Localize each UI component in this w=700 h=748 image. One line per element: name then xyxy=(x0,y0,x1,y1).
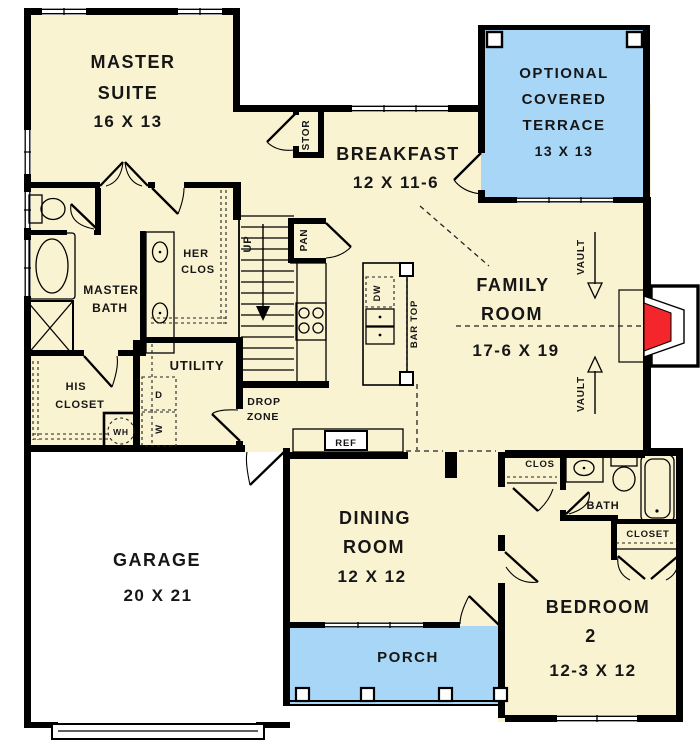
label-garage-dims: 20 X 21 xyxy=(123,586,192,605)
label-her-closet: CLOS xyxy=(181,264,215,276)
label-her-closet: HER xyxy=(183,248,209,260)
label-up: UP xyxy=(242,236,254,253)
label-terrace-dims: 13 X 13 xyxy=(535,143,594,159)
label-family-room: FAMILY xyxy=(476,275,549,295)
label-his-closet: CLOSET xyxy=(55,399,104,411)
label-bar-top: BAR TOP xyxy=(409,300,420,348)
label-breakfast: BREAKFAST xyxy=(336,144,460,164)
label-ref: REF xyxy=(335,438,356,449)
porch-post xyxy=(296,688,309,701)
label-stor: STOR xyxy=(301,120,312,151)
window xyxy=(42,8,86,15)
label-bedroom-2: BEDROOM xyxy=(546,597,651,617)
label-porch: PORCH xyxy=(377,649,439,666)
label-vault: VAULT xyxy=(576,239,587,275)
label-bedroom-2: 2 xyxy=(585,626,597,646)
label-bedroom-2-dims: 12-3 X 12 xyxy=(549,661,636,680)
floor-bath-block xyxy=(24,182,240,452)
porch-post xyxy=(361,688,374,701)
label-his-closet: HIS xyxy=(66,381,87,393)
label-bath: BATH xyxy=(587,500,620,512)
label-master-bath: MASTER xyxy=(83,283,138,297)
label-dryer: D xyxy=(155,390,163,401)
label-closet: CLOSET xyxy=(626,529,669,540)
label-dining-room: ROOM xyxy=(343,537,405,557)
floor-plan-drawing: MASTER SUITE 16 X 13 BREAKFAST 12 X 11-6… xyxy=(0,0,700,748)
label-terrace: TERRACE xyxy=(522,117,605,134)
label-dw: DW xyxy=(372,285,382,302)
window xyxy=(178,8,222,15)
label-master-bath: BATH xyxy=(92,301,128,315)
window xyxy=(325,622,423,628)
label-drop-zone: DROP xyxy=(247,396,281,408)
label-terrace: COVERED xyxy=(522,91,607,108)
label-terrace: OPTIONAL xyxy=(519,65,609,82)
label-garage: GARAGE xyxy=(113,550,201,570)
label-washer: W xyxy=(154,424,165,434)
window xyxy=(24,240,31,296)
label-water-heater: WH xyxy=(113,427,129,437)
floor-plan: MASTER SUITE 16 X 13 BREAKFAST 12 X 11-6… xyxy=(0,0,700,748)
terrace-post xyxy=(487,32,502,47)
label-pan: PAN xyxy=(299,229,310,252)
label-family-room: ROOM xyxy=(481,304,543,324)
label-master-suite: SUITE xyxy=(98,83,159,103)
floor-bedroom-wing xyxy=(498,448,683,722)
label-clos: CLOS xyxy=(525,459,555,470)
window xyxy=(24,130,31,174)
label-family-room-dims: 17-6 X 19 xyxy=(472,341,559,360)
floor-terrace xyxy=(481,28,647,200)
garage-door xyxy=(52,724,264,739)
label-vault: VAULT xyxy=(576,376,587,412)
terrace-post xyxy=(627,32,642,47)
label-drop-zone: ZONE xyxy=(247,411,279,423)
label-dining-room-dims: 12 X 12 xyxy=(337,567,406,586)
window xyxy=(517,197,613,203)
window xyxy=(352,105,448,112)
porch-post xyxy=(494,688,507,701)
label-utility: UTILITY xyxy=(170,358,225,373)
label-dining-room: DINING xyxy=(339,508,411,528)
porch-post xyxy=(439,688,452,701)
window xyxy=(557,715,637,722)
label-master-suite: MASTER xyxy=(91,52,176,72)
label-breakfast-dims: 12 X 11-6 xyxy=(353,173,439,192)
label-master-suite-dims: 16 X 13 xyxy=(93,112,162,131)
